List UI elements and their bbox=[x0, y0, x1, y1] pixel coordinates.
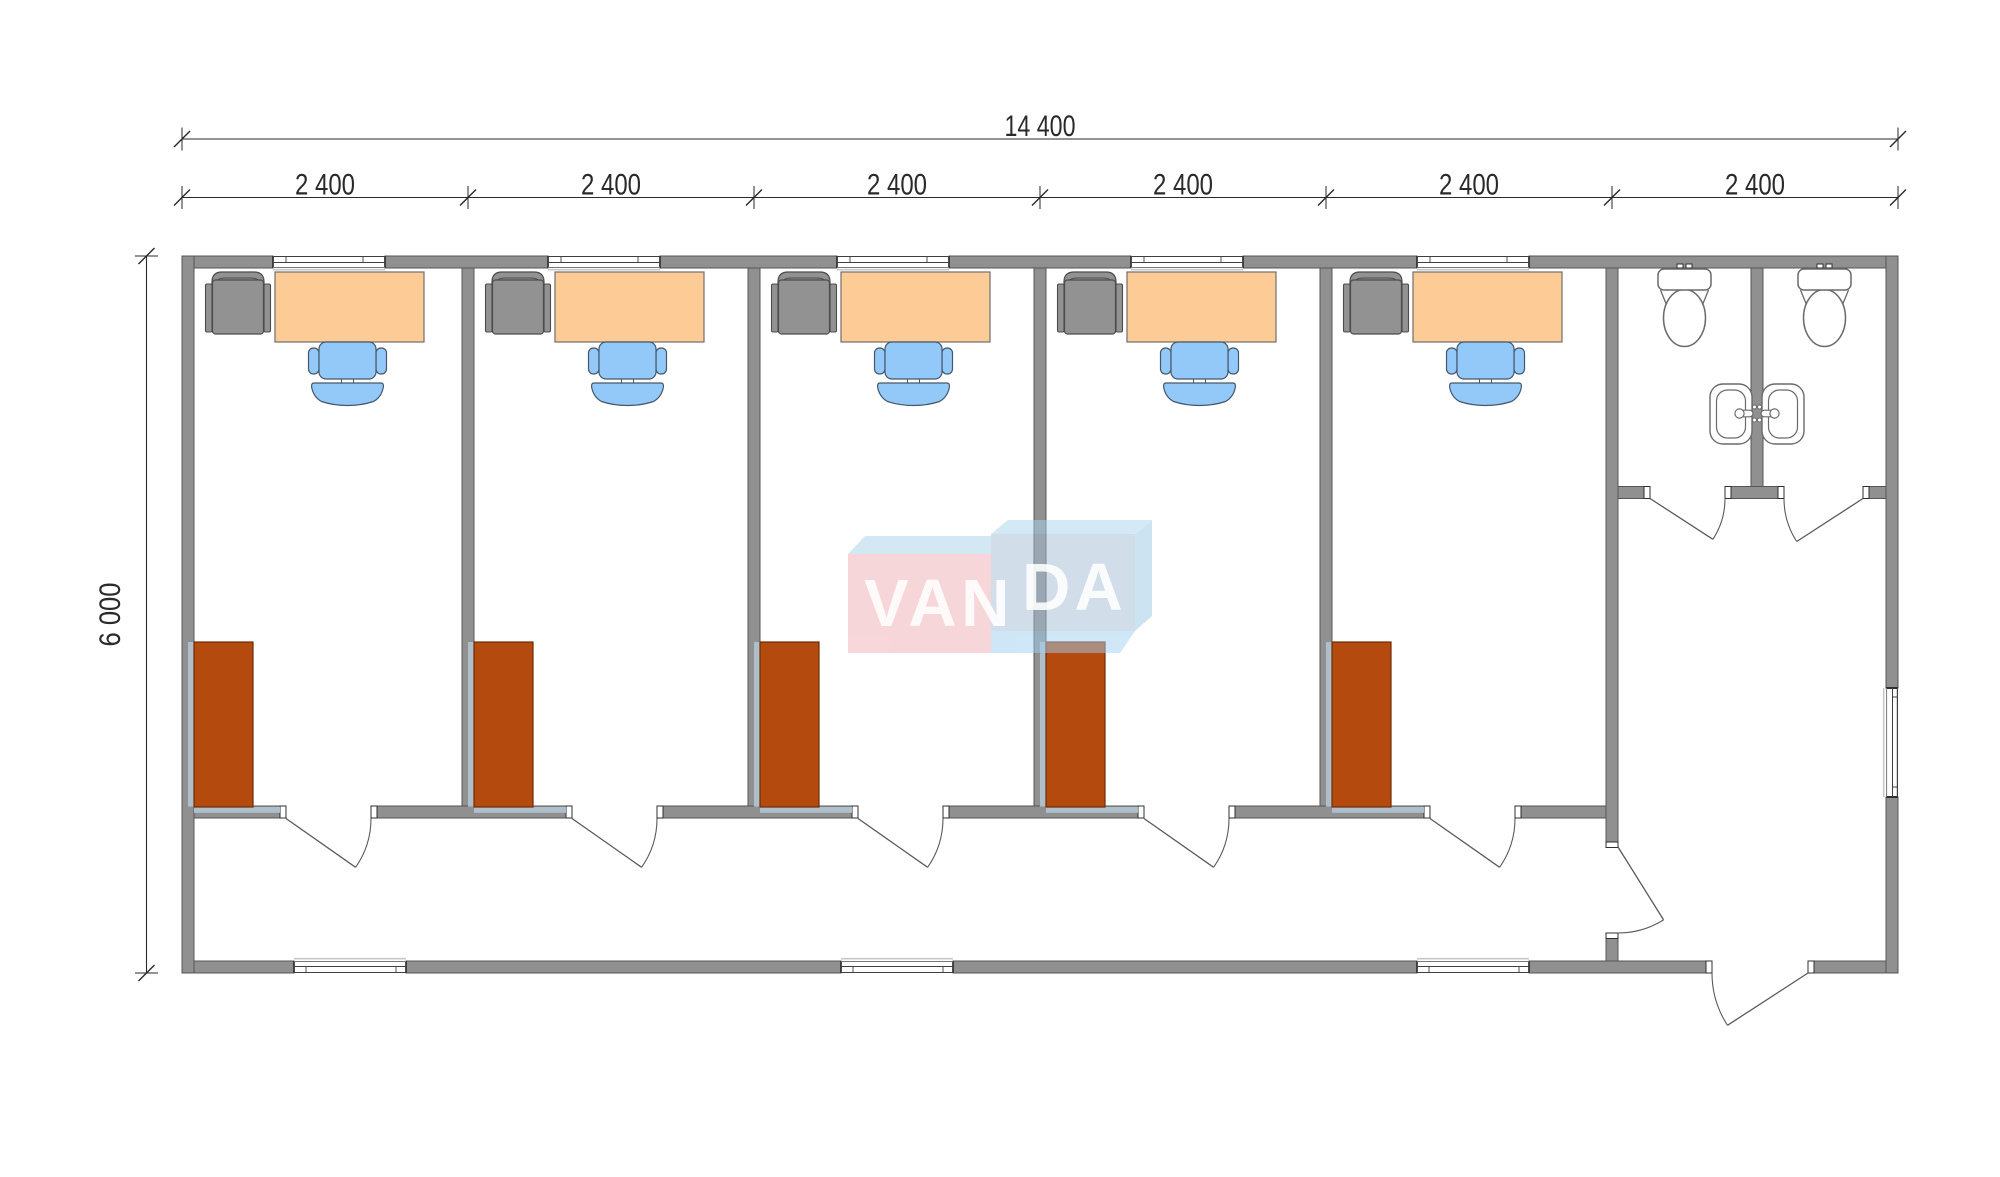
svg-text:14 400: 14 400 bbox=[1005, 110, 1076, 143]
svg-text:DA: DA bbox=[1022, 550, 1127, 625]
svg-text:6 000: 6 000 bbox=[94, 583, 127, 647]
svg-text:2 400: 2 400 bbox=[295, 169, 355, 202]
svg-text:2 400: 2 400 bbox=[581, 169, 641, 202]
svg-text:VAN: VAN bbox=[864, 566, 1014, 641]
svg-text:2 400: 2 400 bbox=[1153, 169, 1213, 202]
svg-text:2 400: 2 400 bbox=[1725, 169, 1785, 202]
svg-text:2 400: 2 400 bbox=[867, 169, 927, 202]
svg-text:2 400: 2 400 bbox=[1439, 169, 1499, 202]
